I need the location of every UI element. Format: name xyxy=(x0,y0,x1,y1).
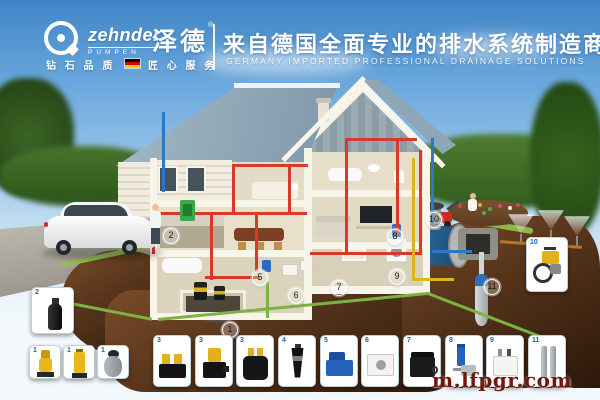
product-card: 1 xyxy=(63,345,95,379)
basement-bathtub xyxy=(162,258,202,273)
red-pipe xyxy=(310,252,422,255)
german-flag-icon xyxy=(124,58,141,69)
pump-base xyxy=(37,372,54,377)
callout-marker-8: 8 xyxy=(387,229,403,245)
product-card: 3 xyxy=(236,335,274,387)
red-pipe xyxy=(232,164,308,167)
blue-lifting-station-image xyxy=(323,344,355,384)
pump-top xyxy=(162,354,170,364)
lifting-unit xyxy=(282,264,298,276)
sewage-pump xyxy=(194,282,207,300)
red-pipe xyxy=(345,138,417,141)
window xyxy=(158,166,178,193)
callout-marker-5: 5 xyxy=(252,270,268,286)
pump-body xyxy=(48,304,62,330)
pump-body xyxy=(39,358,52,372)
wheel-hub xyxy=(126,244,133,251)
header-divider xyxy=(213,24,215,70)
logo-dot xyxy=(57,34,65,42)
pillow xyxy=(290,184,298,190)
man-legs xyxy=(151,228,160,244)
floor-slab xyxy=(150,250,311,257)
yellow-pipe xyxy=(412,278,454,281)
pump-motor xyxy=(208,348,221,362)
roof-ridge xyxy=(234,83,340,88)
watermark: m.lfpgr.com xyxy=(432,368,572,392)
tv xyxy=(360,206,392,223)
product-card: 5 xyxy=(320,335,358,387)
pump-body xyxy=(542,251,559,264)
yellow-black-pump-image xyxy=(198,344,230,384)
red-pipe xyxy=(345,138,348,254)
station-base xyxy=(326,360,353,376)
pump-body xyxy=(290,348,305,378)
callout-marker-9: 9 xyxy=(389,269,405,285)
callout-marker-2: 2 xyxy=(163,228,179,244)
tv-shelf xyxy=(356,226,396,229)
pump-motor xyxy=(550,264,561,274)
red-pipe xyxy=(210,212,213,280)
chimney-cap xyxy=(316,98,331,103)
black-tank-yellow-caps-image xyxy=(239,344,271,384)
garden-pump-image xyxy=(530,245,564,289)
wheel-hub xyxy=(60,244,67,251)
chairs xyxy=(238,242,246,250)
red-pipe xyxy=(396,138,399,234)
pump-band xyxy=(293,356,302,361)
red-pipe xyxy=(232,164,235,214)
black-pump-image xyxy=(38,294,68,332)
pump-top xyxy=(174,354,182,364)
product-card: 1 xyxy=(97,345,129,379)
tank-body xyxy=(104,356,122,377)
product-card: 3 xyxy=(195,335,233,387)
pump-handle xyxy=(544,247,556,250)
car-taillight xyxy=(44,222,48,227)
blue-pipe xyxy=(432,250,472,253)
brand-chinese: 泽德® xyxy=(152,22,213,58)
brand-subtitle: PUMPEN xyxy=(88,47,161,56)
pump-base xyxy=(72,373,87,378)
flowers xyxy=(458,204,462,208)
callout-marker-11: 11 xyxy=(484,279,500,295)
grey-tank-image xyxy=(98,349,128,379)
sewage-pump xyxy=(214,286,225,300)
brand-block: zehnderPUMPEN xyxy=(88,27,161,56)
callout-marker-7: 7 xyxy=(331,280,347,296)
tank-body xyxy=(243,356,268,380)
callout-marker-10: 10 xyxy=(426,212,442,228)
red-pipe xyxy=(419,150,422,254)
twin-pump-station-image xyxy=(156,344,188,384)
zehnder-logo-icon xyxy=(44,21,80,57)
green-drain-pipe xyxy=(266,282,269,318)
white-box-unit-image xyxy=(364,344,396,384)
poster-subtitle: GERMANY IMPORTED PROFESSIONAL DRAINAGE S… xyxy=(226,56,586,66)
cylinder xyxy=(457,347,465,366)
cone-pump-image xyxy=(281,344,313,384)
product-card: 6 xyxy=(361,335,399,387)
brand-name: zehnder xyxy=(88,25,161,45)
yellow-pump-image xyxy=(30,349,60,379)
product-card: 4 xyxy=(278,335,316,387)
gardener-body xyxy=(468,199,477,211)
tagline-right: 匠 心 服 务 xyxy=(148,57,217,72)
product-card: 1 xyxy=(29,345,61,379)
red-pipe xyxy=(255,212,258,272)
unit-porthole xyxy=(376,360,386,370)
product-card: 3 xyxy=(153,335,191,387)
yellow-pipe xyxy=(412,158,415,280)
red-pipe xyxy=(288,164,291,214)
man-head xyxy=(152,204,159,211)
wall-unit-panel xyxy=(183,204,192,216)
flag-gold-stripe xyxy=(125,65,140,68)
blue-downpipe xyxy=(162,112,165,192)
sink xyxy=(368,164,380,172)
poster-canvas: zehnderPUMPEN 泽德® 钻 石 品 质 匠 心 服 务 来自德国全面… xyxy=(0,0,600,400)
man-body xyxy=(150,211,161,228)
yellow-pump-tall-image xyxy=(64,349,94,379)
product-card: 2 xyxy=(31,287,74,334)
station-base xyxy=(159,364,186,378)
floor-slab xyxy=(150,200,311,207)
product-card: 10 xyxy=(526,237,568,292)
pump-body xyxy=(74,352,85,373)
callout-marker-6: 6 xyxy=(288,288,304,304)
red-pipe xyxy=(152,212,307,215)
dining-table xyxy=(234,228,284,241)
window xyxy=(186,166,206,193)
poster-title: 来自德国全面专业的排水系统制造商 xyxy=(223,27,600,59)
pump-spout xyxy=(223,366,229,372)
tagline-left: 钻 石 品 质 xyxy=(46,57,115,72)
